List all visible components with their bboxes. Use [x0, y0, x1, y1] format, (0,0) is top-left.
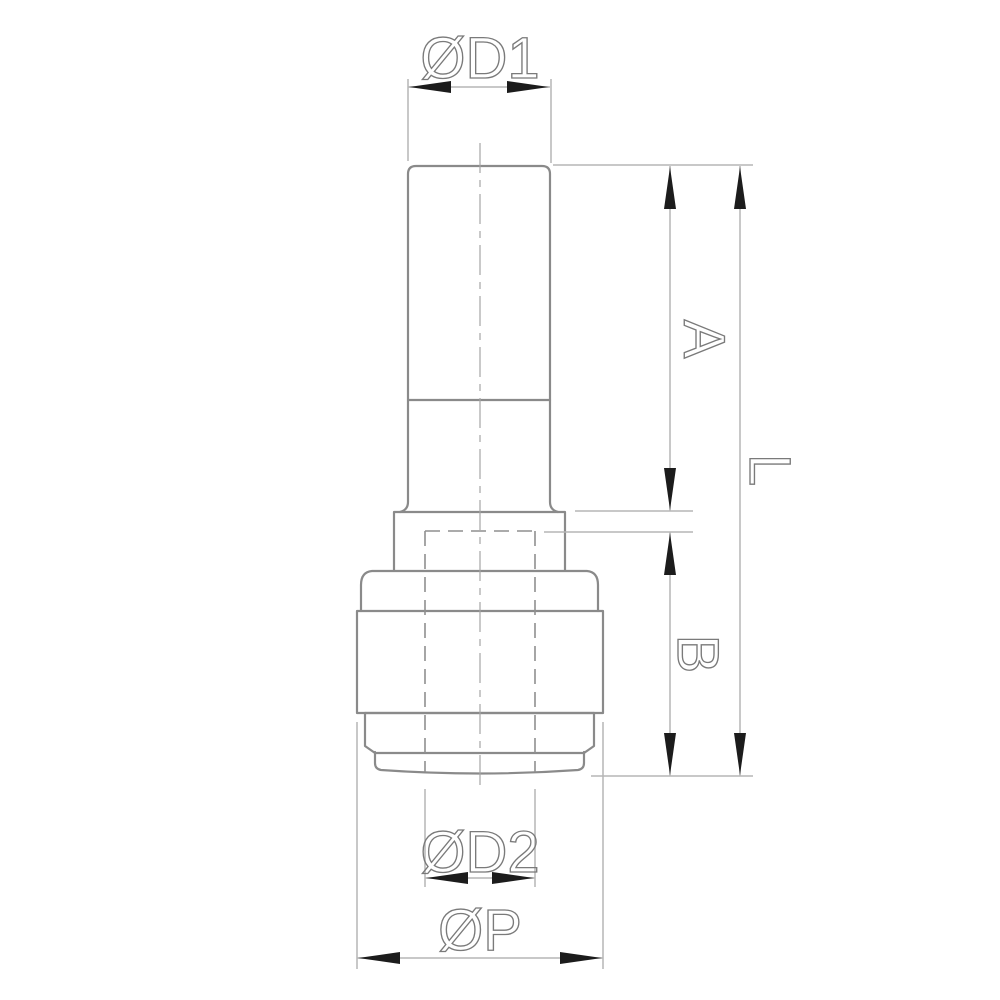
lower-step-right-edge [584, 713, 594, 753]
arrow-l-top [734, 167, 746, 209]
reducer-fitting-drawing: ØD1 A L B ØD2 ØP [0, 0, 1000, 1000]
arrow-p-right [560, 952, 602, 964]
arrow-b-top [664, 533, 676, 575]
stem-lower-right-edge [550, 400, 558, 512]
lower-step-left-edge [365, 713, 375, 753]
dim-label-b: B [665, 635, 730, 674]
arrow-b-bottom [664, 733, 676, 775]
arrow-l-bottom [734, 733, 746, 775]
dim-label-d1: ØD1 [420, 26, 539, 91]
dim-label-l: L [737, 454, 802, 486]
extension-lines [357, 79, 753, 969]
dim-label-d2: ØD2 [420, 820, 539, 885]
dim-label-a: A [671, 320, 736, 359]
stem-upper-edge [408, 166, 550, 400]
arrow-a-bottom [664, 468, 676, 510]
arrow-a-top [664, 167, 676, 209]
stem-lower-left-edge [400, 400, 408, 512]
dim-label-p: ØP [438, 898, 522, 963]
dimension-lines [357, 87, 740, 958]
arrow-p-left [358, 952, 400, 964]
arrowheads [358, 81, 746, 964]
technical-drawing-canvas: ØD1 A L B ØD2 ØP [0, 0, 1000, 1000]
